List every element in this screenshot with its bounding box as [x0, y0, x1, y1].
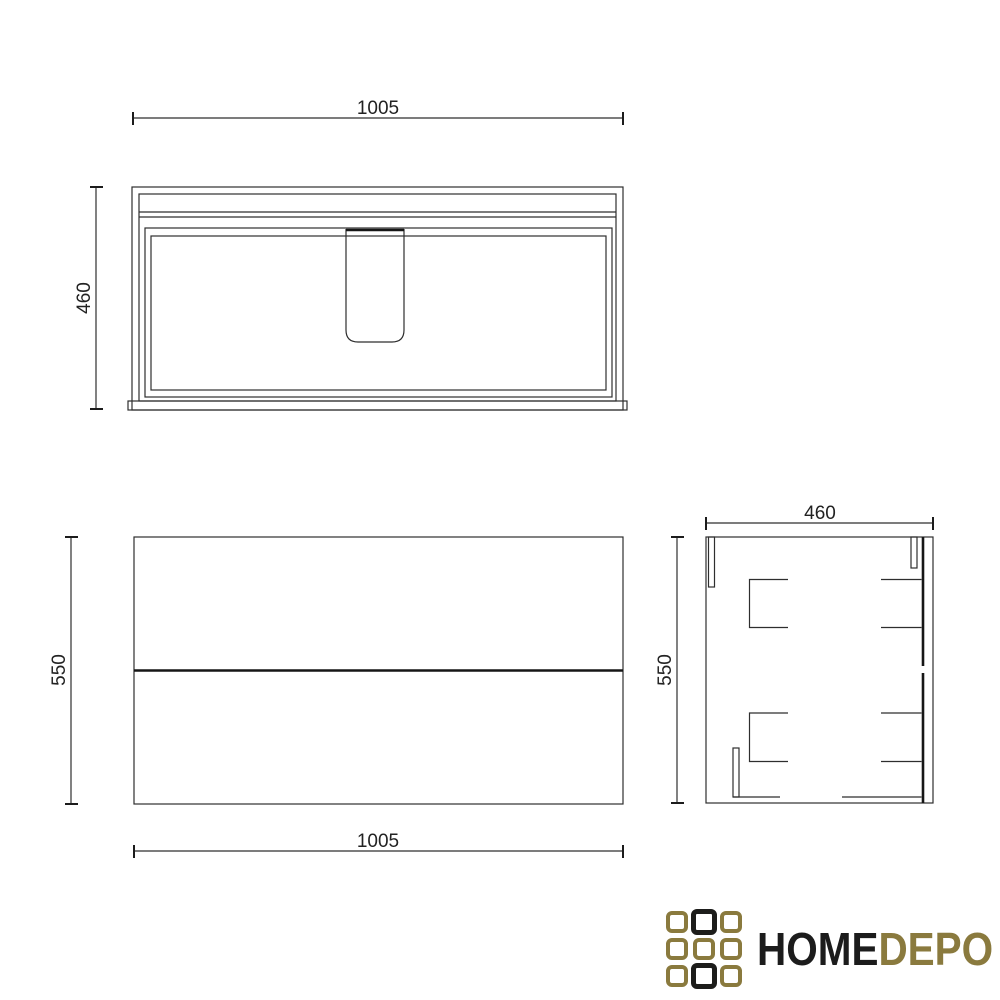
front-view-height-label: 550 [49, 654, 70, 686]
top-view-depth-dimension: 460 [74, 187, 103, 409]
logo-grid-cell [691, 963, 717, 989]
logo-grid-cell [666, 938, 688, 960]
countertop-outline [132, 187, 623, 410]
front-view-width-label: 1005 [357, 831, 399, 852]
brand-logo: HOMEDEPO [666, 906, 1000, 992]
side-view-depth-label: 460 [804, 503, 836, 524]
logo-grid-cell [693, 938, 715, 960]
front-view-height-dimension: 550 [49, 537, 78, 804]
logo-grid-cell [720, 911, 742, 933]
logo-grid-cell [666, 911, 688, 933]
top-view-depth-label: 460 [74, 282, 95, 314]
side-view-height-dimension: 550 [655, 537, 684, 803]
top-view-width-dimension: 1005 [133, 98, 623, 125]
side-view-height-label: 550 [655, 654, 676, 686]
logo-grid-cell [720, 938, 742, 960]
vanity-technical-drawing: 1005 460 [0, 0, 1000, 1000]
cabinet-side-outline [706, 537, 933, 803]
side-view-depth-dimension: 460 [706, 503, 933, 530]
top-view: 1005 460 [74, 98, 627, 410]
top-view-width-label: 1005 [357, 98, 399, 119]
logo-grid-cell [691, 909, 717, 935]
front-view-drawing [134, 537, 623, 804]
side-view-drawing [706, 537, 933, 803]
front-view: 550 1005 [49, 537, 623, 858]
front-view-width-dimension: 1005 [134, 831, 623, 858]
logo-wordmark: HOMEDEPO [757, 926, 993, 972]
top-view-drawing [128, 187, 627, 410]
logo-word-home: HOME [757, 923, 878, 975]
logo-grid-icon [666, 911, 742, 987]
logo-grid-cell [720, 965, 742, 987]
side-view: 460 550 [655, 503, 933, 803]
logo-word-depo: DEPO [878, 923, 993, 975]
logo-grid-cell [666, 965, 688, 987]
technical-drawing-canvas: 1005 460 [0, 0, 1000, 1000]
